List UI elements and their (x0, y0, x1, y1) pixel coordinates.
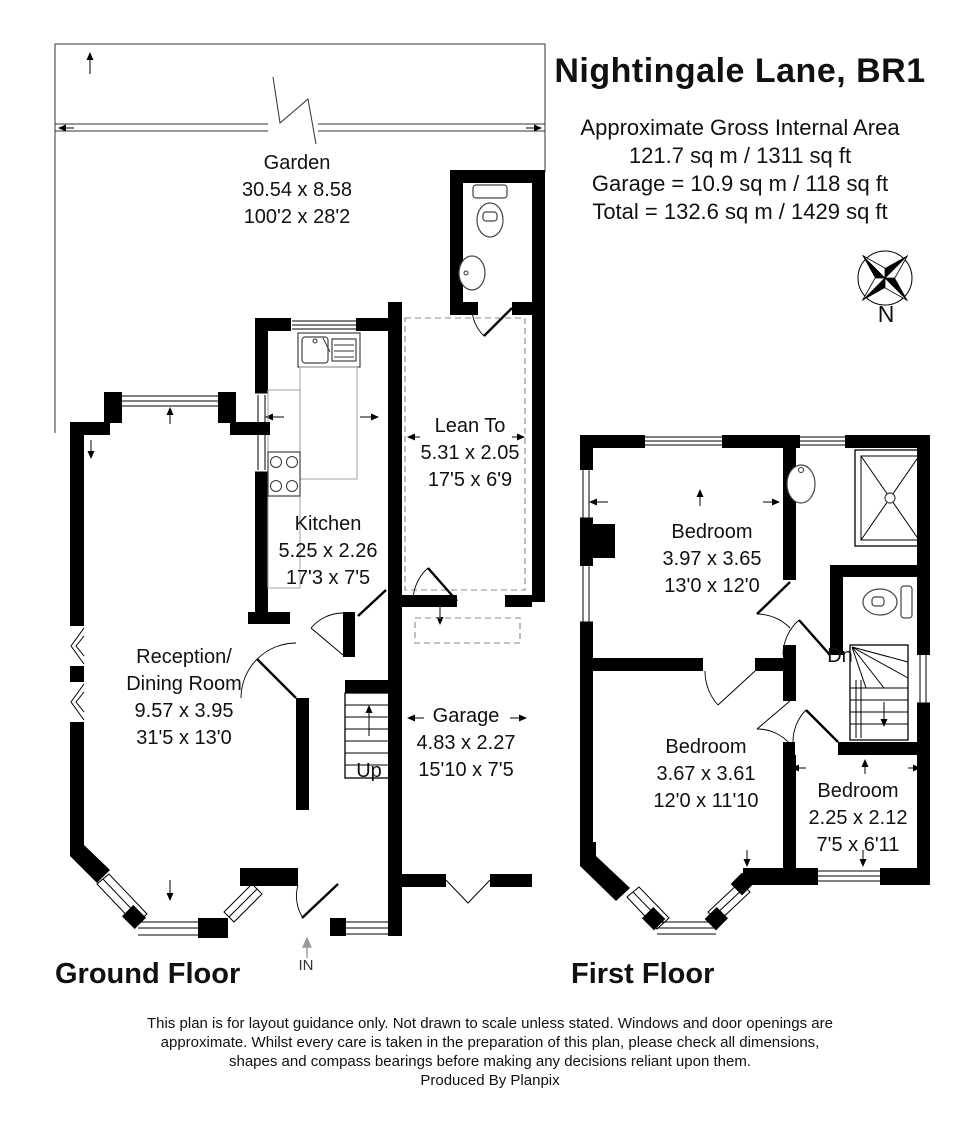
bathroom-sink-icon (787, 465, 815, 503)
page-title: Nightingale Lane, BR1 (540, 52, 940, 91)
window-icon (645, 437, 722, 445)
toilet-icon (473, 185, 507, 237)
ground-bay-window (97, 868, 298, 938)
area-summary-line: Approximate Gross Internal Area (540, 114, 940, 142)
footer-disclaimer: This plan is for layout guidance only. N… (135, 1014, 845, 1090)
window-icon (580, 564, 593, 622)
first-floor-toilet-icon (863, 586, 912, 618)
garage-label: Garage 4.83 x 2.27 15'10 x 7'5 (417, 703, 516, 784)
kitchen-sink-icon (298, 333, 360, 367)
floorplan-page: Nightingale Lane, BR1 Approximate Gross … (0, 0, 980, 1127)
disclaimer-text: This plan is for layout guidance only. N… (135, 1014, 845, 1071)
bedroom3-label: Bedroom 2.25 x 2.12 7'5 x 6'11 (809, 778, 908, 859)
area-summary-line: 121.7 sq m / 1311 sq ft (540, 142, 940, 170)
first-floor-bay-window (627, 873, 753, 934)
garage-door-icon (446, 880, 490, 903)
kitchen-window-icon (292, 321, 356, 329)
compass-north-label: N (878, 303, 895, 325)
area-summary-line: Total = 132.6 sq m / 1429 sq ft (540, 198, 940, 226)
window-icon (580, 468, 593, 518)
reception-label: Reception/ Dining Room 9.57 x 3.95 31'5 … (126, 644, 242, 752)
lean-to-label: Lean To 5.31 x 2.05 17'5 x 6'9 (421, 413, 520, 494)
alcove-chevron-icon (71, 684, 84, 720)
shower-icon (855, 450, 925, 546)
stairs-down-icon (850, 645, 908, 740)
stairs-up-label: Up (356, 760, 382, 782)
alcove-chevron-icon (71, 628, 84, 664)
window-icon (818, 871, 880, 881)
kitchen-label: Kitchen 5.25 x 2.26 17'3 x 7'5 (279, 511, 378, 592)
break-line-icon (273, 77, 316, 144)
bedroom1-label: Bedroom 3.97 x 3.65 13'0 x 12'0 (663, 519, 762, 600)
first-floor-title: First Floor (571, 958, 714, 991)
garden-label: Garden 30.54 x 8.58 100'2 x 28'2 (242, 150, 352, 231)
hob-icon (268, 452, 300, 496)
porch-window-icon (346, 922, 388, 934)
ground-floor-title: Ground Floor (55, 958, 240, 991)
reception-walls (70, 392, 388, 883)
bay-window-icon (122, 396, 218, 406)
front-door (170, 874, 402, 958)
window-icon (800, 437, 845, 445)
credit-text: Produced By Planpix (135, 1071, 845, 1090)
stairs-down-label: Dn (827, 645, 853, 667)
bedroom2-label: Bedroom 3.67 x 3.61 12'0 x 11'10 (653, 734, 758, 815)
window-icon (917, 653, 930, 703)
entrance-in-label: IN (299, 955, 314, 977)
area-summary-line: Garage = 10.9 sq m / 118 sq ft (540, 170, 940, 198)
wc-basin-icon (459, 256, 485, 290)
